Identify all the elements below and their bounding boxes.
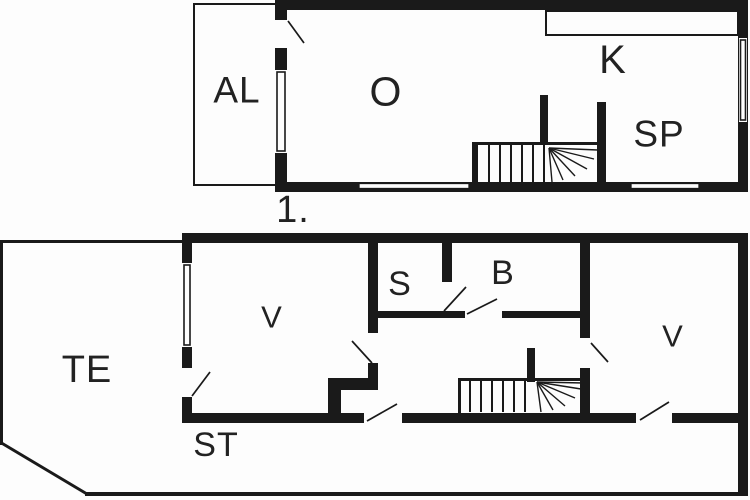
room-label-s: S xyxy=(388,267,412,301)
door-swing xyxy=(467,299,497,314)
upper-floor xyxy=(194,0,748,192)
wall-stub xyxy=(540,95,548,145)
terrace-edge xyxy=(85,492,748,496)
door-swing xyxy=(288,21,304,43)
room-label-b: B xyxy=(491,256,515,290)
wall-stub xyxy=(368,363,378,378)
terrace-edge xyxy=(0,240,3,445)
wall xyxy=(277,0,748,10)
door-gap xyxy=(273,20,289,48)
window xyxy=(359,184,469,189)
door-swing xyxy=(352,341,372,363)
terrace-edge xyxy=(0,240,183,243)
room-label-v-right: V xyxy=(662,321,684,352)
wall xyxy=(597,102,606,186)
door-gap xyxy=(364,412,402,424)
door-swing xyxy=(444,287,466,311)
staircase-lower xyxy=(458,348,585,418)
wall xyxy=(738,233,748,423)
room-label-sp: SP xyxy=(633,116,684,153)
door-swing xyxy=(591,343,608,362)
window xyxy=(631,184,699,189)
door-gap xyxy=(636,412,672,424)
room-label-v-left: V xyxy=(261,302,283,333)
door-gap xyxy=(180,368,194,397)
staircase-upper xyxy=(472,142,598,185)
room-label-st: ST xyxy=(193,428,238,462)
wall xyxy=(368,243,378,333)
wall xyxy=(368,311,465,318)
floor-plan-canvas: AL O K SP 1. TE V S B V ST xyxy=(0,0,750,500)
wall xyxy=(580,243,590,338)
wall xyxy=(580,368,590,423)
floor-number-label: 1. xyxy=(276,191,310,229)
terrace-edge xyxy=(2,443,88,494)
window xyxy=(739,38,747,122)
room-label-o: O xyxy=(370,72,403,113)
kitchen-counter-outline xyxy=(546,11,738,35)
wall xyxy=(328,378,341,423)
wall xyxy=(442,243,452,282)
window xyxy=(181,263,193,347)
wall xyxy=(502,311,590,318)
wall xyxy=(183,233,748,243)
room-label-al: AL xyxy=(213,72,260,109)
terrace-edge xyxy=(738,423,748,494)
room-label-te: TE xyxy=(62,351,113,389)
window xyxy=(273,70,289,153)
room-label-k: K xyxy=(599,40,627,80)
door-swing xyxy=(192,372,210,396)
